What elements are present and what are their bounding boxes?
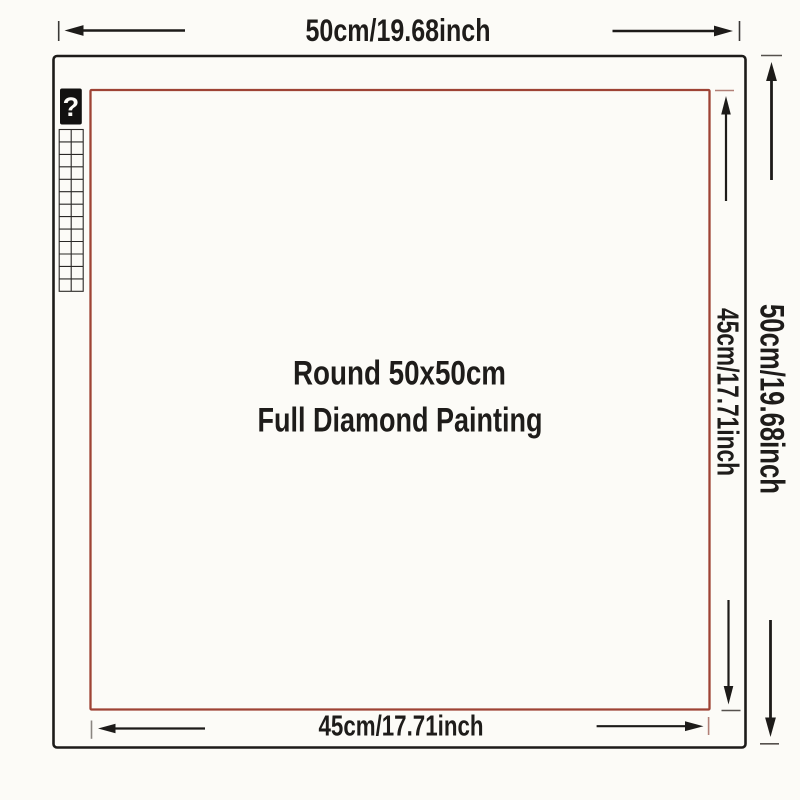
svg-text:45cm/17.71inch: 45cm/17.71inch [711, 308, 746, 476]
svg-text:50cm/19.68inch: 50cm/19.68inch [306, 12, 491, 48]
svg-text:Round 50x50cm: Round 50x50cm [293, 355, 506, 393]
svg-text:Full Diamond Painting: Full Diamond Painting [258, 402, 543, 440]
svg-text:45cm/17.71inch: 45cm/17.71inch [319, 711, 484, 743]
svg-text:50cm/19.68inch: 50cm/19.68inch [753, 304, 791, 494]
svg-text:?: ? [63, 92, 80, 122]
